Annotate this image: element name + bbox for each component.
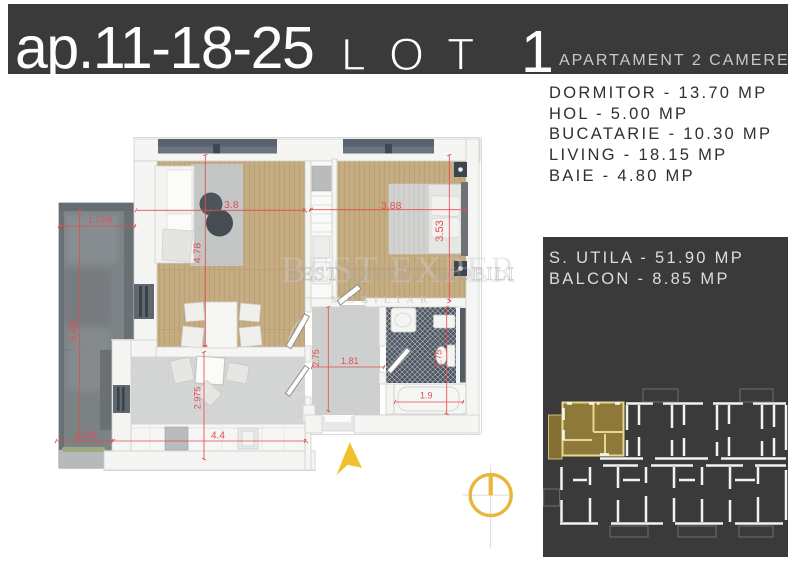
svg-text:6.485: 6.485	[68, 319, 78, 341]
svg-text:1.81: 1.81	[341, 356, 359, 366]
svg-text:2.975: 2.975	[193, 387, 203, 410]
svg-text:3.8: 3.8	[224, 199, 239, 211]
svg-text:1.125: 1.125	[75, 430, 97, 440]
svg-text:1.9: 1.9	[420, 391, 433, 401]
svg-text:3.53: 3.53	[434, 220, 446, 241]
svg-text:2.75: 2.75	[311, 349, 321, 367]
svg-text:3.88: 3.88	[381, 200, 402, 212]
svg-text:MOBILIAR: MOBILIAR	[331, 294, 433, 306]
svg-text:BEST EXPERT IMOBILI: BEST EXPERT IMOBILI	[287, 264, 515, 285]
svg-text:1.72/6: 1.72/6	[88, 215, 113, 225]
svg-text:2.75: 2.75	[434, 350, 444, 368]
svg-text:4.78: 4.78	[192, 243, 204, 264]
svg-text:4.4: 4.4	[211, 431, 225, 442]
